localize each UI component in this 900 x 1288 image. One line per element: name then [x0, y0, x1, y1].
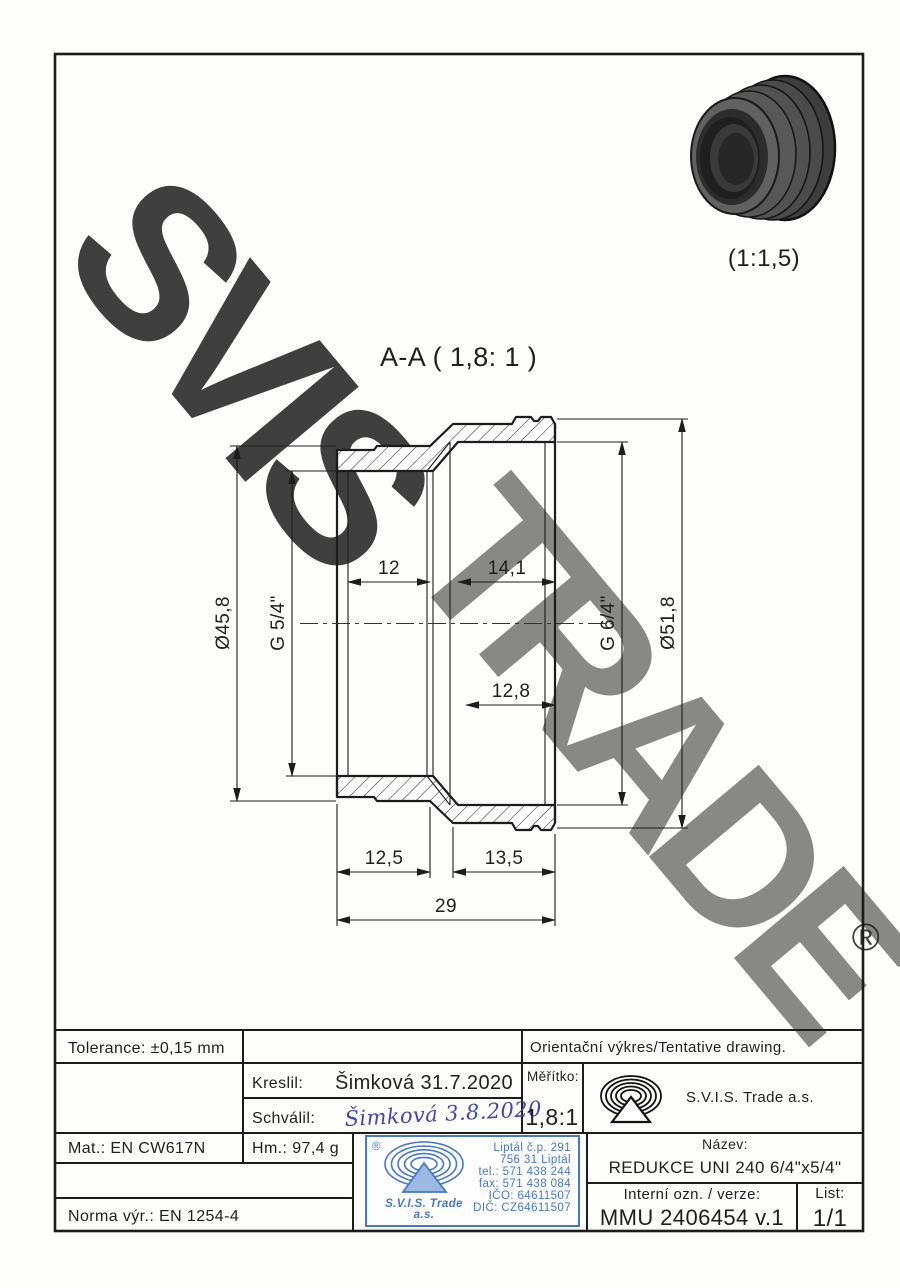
svg-text:14,1: 14,1: [488, 558, 527, 579]
dim-len-total: 29: [337, 896, 555, 920]
norma-value: Norma výr.: EN 1254-4: [68, 1208, 239, 1225]
meritko-value: 1,8:1: [525, 1104, 578, 1130]
svg-text:Ø51,8: Ø51,8: [658, 596, 679, 650]
part-3d-render: [691, 76, 835, 220]
list-value: 1/1: [813, 1205, 848, 1232]
material-value: Mat.: EN CW617N: [68, 1140, 206, 1157]
section-view-label: A-A ( 1,8: 1 ): [380, 342, 537, 372]
stamp-registered-icon: ®: [372, 1141, 381, 1153]
interni-label: Interní ozn. / verze:: [624, 1186, 761, 1203]
dim-len-right: 13,5: [453, 848, 555, 872]
3d-bore-shadow: [718, 133, 754, 185]
drawing-sheet: SVIS TRADE ® (1:1,5) A-A ( 1,8: 1 ): [0, 0, 900, 1288]
stamp-line-ico: IČO: 64611507: [489, 1189, 571, 1202]
svg-text:Ø45,8: Ø45,8: [213, 596, 234, 650]
stamp-line-address2: 756 31 Liptál: [500, 1154, 571, 1166]
company-name: S.V.I.S. Trade a.s.: [686, 1089, 814, 1106]
watermark-registered-icon: ®: [852, 917, 880, 959]
kreslil-value: Šimková 31.7.2020: [335, 1071, 513, 1094]
stamp-line-fax: fax: 571 438 084: [479, 1178, 571, 1190]
interni-value: MMU 2406454 v.1: [600, 1205, 784, 1230]
svg-text:12: 12: [378, 558, 400, 579]
svg-text:G 6/4": G 6/4": [598, 595, 619, 651]
svg-text:12,8: 12,8: [492, 681, 531, 702]
schvalil-signature: Šimková 3.8.2020: [344, 1097, 542, 1131]
svg-text:12,5: 12,5: [365, 848, 404, 869]
nazev-value: REDUKCE UNI 240 6/4"x5/4": [609, 1158, 842, 1177]
svg-text:G 5/4": G 5/4": [268, 595, 289, 651]
technical-drawing: SVIS TRADE ® (1:1,5) A-A ( 1,8: 1 ): [0, 0, 900, 1288]
schvalil-label: Schválil:: [252, 1110, 315, 1127]
orientation-note: Orientační výkres/Tentative drawing.: [530, 1039, 786, 1056]
nazev-label: Název:: [702, 1136, 748, 1152]
section-bottom-wall: [337, 776, 555, 830]
svg-text:13,5: 13,5: [485, 848, 524, 869]
svis-logo: [601, 1076, 661, 1122]
meritko-label: Měřítko:: [527, 1069, 579, 1084]
dim-len-left: 12,5: [337, 848, 430, 872]
stamp-line-dic: DIČ: CZ64611507: [473, 1201, 571, 1214]
weight-value: Hm.: 97,4 g: [252, 1140, 339, 1157]
watermark-trade-text: TRADE: [366, 440, 900, 1077]
kreslil-label: Kreslil:: [252, 1075, 303, 1092]
stamp-line-address1: Liptál č.p. 291: [493, 1142, 571, 1154]
3d-scale-caption: (1:1,5): [728, 245, 800, 272]
stamp-line-tel: tel.: 571 438 244: [479, 1166, 572, 1178]
stamp-company-suffix: a.s.: [414, 1209, 435, 1221]
tolerance-note: Tolerance: ±0,15 mm: [68, 1040, 225, 1057]
company-stamp: ® S.V.I.S. Trade a.s. Liptál č.p. 291 75…: [366, 1136, 579, 1226]
svg-text:29: 29: [435, 896, 457, 917]
list-label: List:: [815, 1185, 845, 1202]
